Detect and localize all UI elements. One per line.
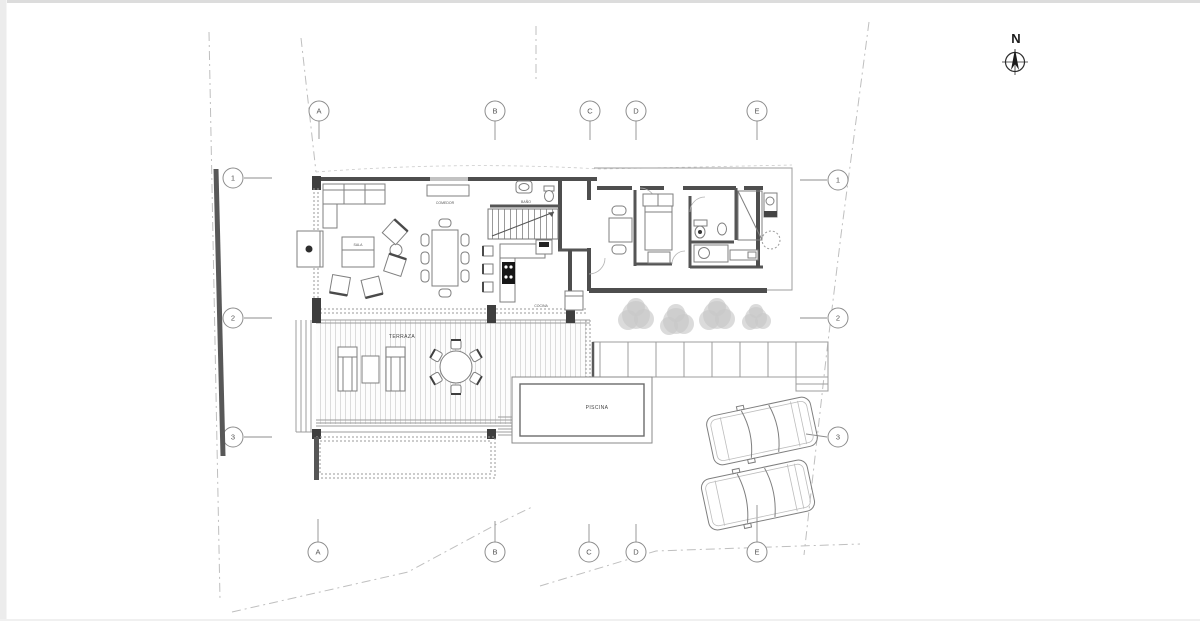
bar-stool <box>483 246 493 292</box>
tree <box>742 304 771 330</box>
terrace-lounge-chair <box>338 347 357 391</box>
svg-text:D: D <box>633 548 639 557</box>
terrace-side-table <box>362 356 379 383</box>
cocina-label: COCINA <box>534 304 548 308</box>
coffee-table <box>342 237 374 267</box>
dining-area: COMEDOR <box>421 185 469 297</box>
terrace-lounge-chair <box>386 347 405 391</box>
tree <box>699 298 735 330</box>
bidet <box>718 223 727 235</box>
armchair <box>361 276 383 298</box>
property-line-south-west <box>232 507 532 612</box>
laundry <box>762 193 780 249</box>
comedor-label: COMEDOR <box>436 201 455 205</box>
svg-text:3: 3 <box>231 433 235 442</box>
svg-text:A: A <box>315 548 320 557</box>
armchair <box>382 219 407 244</box>
lower-patio <box>314 437 495 480</box>
property-line-east <box>804 22 869 555</box>
svg-text:1: 1 <box>836 176 840 185</box>
desk-chair <box>612 245 626 254</box>
sideboard <box>427 185 469 196</box>
property-lines <box>209 22 869 612</box>
desk-chair <box>612 206 626 215</box>
grid-bubble-2-left: 2 <box>223 308 243 328</box>
grid-bubble-e-bottom: E <box>747 542 767 562</box>
svg-text:C: C <box>587 107 593 116</box>
piscina-label: PISCINA <box>586 405 609 411</box>
bathroom <box>694 191 762 262</box>
tree <box>660 304 694 335</box>
north-label: N <box>1011 31 1020 46</box>
stairs <box>488 209 558 239</box>
kitchen-island <box>536 240 552 254</box>
retaining-wall <box>216 169 223 456</box>
svg-text:C: C <box>586 548 592 557</box>
bed-bench <box>648 252 670 263</box>
stove <box>502 262 515 284</box>
grid-bubble-1-left: 1 <box>223 168 243 188</box>
svg-text:E: E <box>754 107 759 116</box>
dining-table <box>432 230 458 286</box>
grid-bubble-b-bottom: B <box>485 542 505 562</box>
grid-bubble-a-top: A <box>309 101 329 121</box>
bedroom <box>609 194 673 263</box>
car <box>704 392 820 471</box>
grid-bubble-3-left: 3 <box>223 427 243 447</box>
living-room: SALA <box>323 184 408 298</box>
armchair <box>384 254 407 277</box>
vanity <box>694 245 758 262</box>
toilet <box>694 220 707 238</box>
powder-room: BAÑO <box>516 181 554 204</box>
grid-bubble-1-right: 1 <box>828 170 848 190</box>
grid-bubble-c-bottom: C <box>579 542 599 562</box>
svg-text:B: B <box>492 548 497 557</box>
grid-bubble-a-bottom: A <box>308 542 328 562</box>
sala-label: SALA <box>354 243 364 247</box>
svg-text:B: B <box>492 107 497 116</box>
floor-plan-sheet: N A B C D E A <box>0 0 1200 621</box>
bed <box>643 194 673 250</box>
dashed-circle-marker <box>762 231 780 249</box>
svg-text:D: D <box>633 107 639 116</box>
svg-text:3: 3 <box>836 433 840 442</box>
desk <box>609 206 632 254</box>
terraza-label: TERRAZA <box>389 334 415 340</box>
grid-bubble-b-top: B <box>485 101 505 121</box>
grid-bubble-d-bottom: D <box>626 542 646 562</box>
svg-text:2: 2 <box>836 314 840 323</box>
sink <box>516 181 532 193</box>
kitchen-appliance <box>565 291 583 310</box>
house: SALA COMEDOR <box>297 168 792 316</box>
svg-text:1: 1 <box>231 174 235 183</box>
sofa <box>323 184 385 228</box>
fireplace <box>297 231 323 267</box>
grid-bubble-d-top: D <box>626 101 646 121</box>
toilet <box>544 186 554 202</box>
floor-plan-drawing: N A B C D E A <box>0 0 1200 621</box>
north-indicator: N <box>1002 31 1028 75</box>
tree <box>618 298 654 330</box>
grid-bubble-2-right: 2 <box>828 308 848 328</box>
grid-bubble-3-right: 3 <box>828 427 848 447</box>
svg-text:E: E <box>754 548 759 557</box>
banio-label: BAÑO <box>521 199 531 204</box>
grid-bubble-e-top: E <box>747 101 767 121</box>
pool: PISCINA <box>498 377 652 443</box>
svg-text:2: 2 <box>231 314 235 323</box>
car <box>699 454 817 535</box>
armchair <box>330 275 351 296</box>
grid-bubble-c-top: C <box>580 101 600 121</box>
svg-text:A: A <box>316 107 321 116</box>
